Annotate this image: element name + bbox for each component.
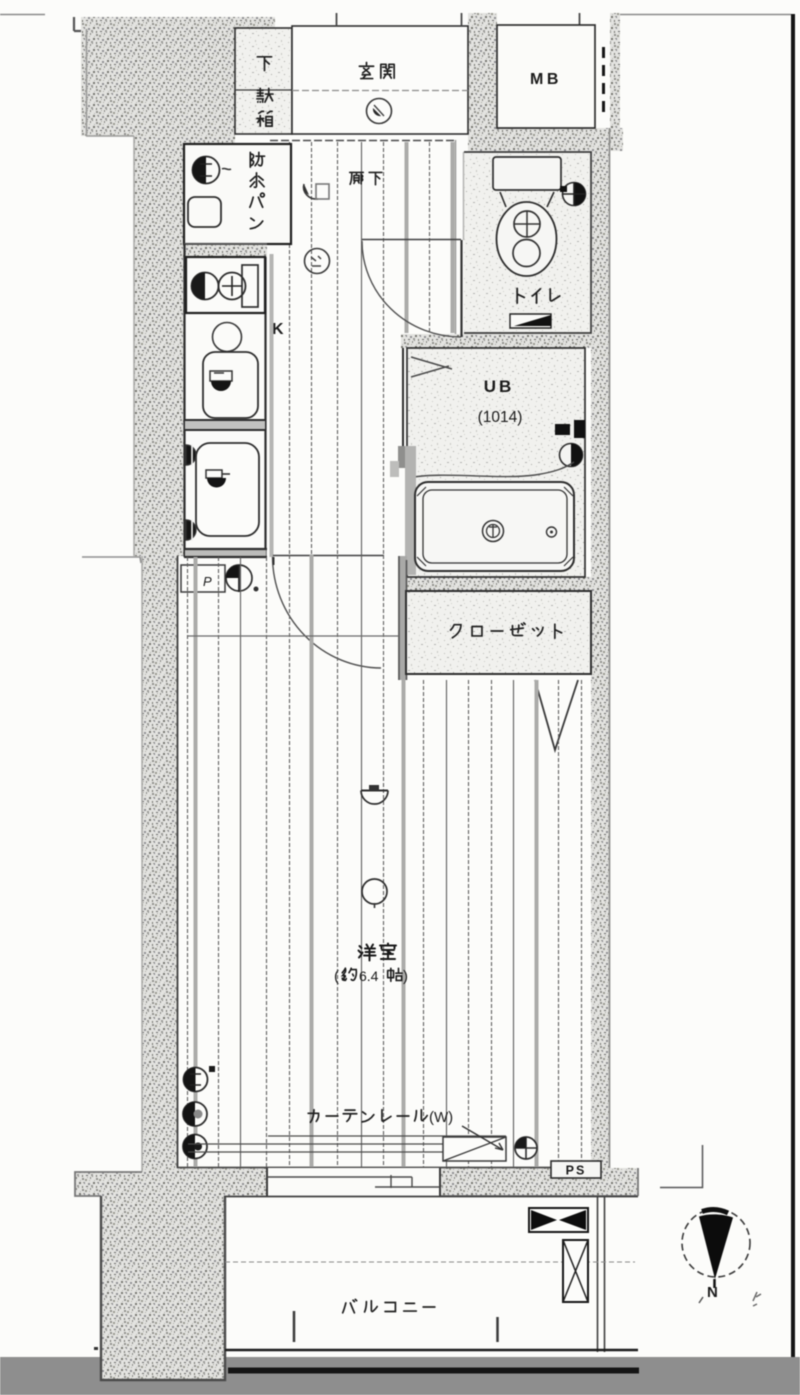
svg-text:(: ( [334, 968, 339, 985]
svg-text:): ) [403, 968, 408, 985]
svg-text:UB: UB [484, 377, 515, 396]
svg-text:6.4: 6.4 [359, 968, 379, 984]
svg-text:(W): (W) [429, 1109, 453, 1126]
svg-text:N: N [707, 1284, 718, 1301]
svg-text:K: K [272, 321, 284, 338]
svg-text:PS: PS [566, 1164, 587, 1178]
svg-text:(1014): (1014) [478, 409, 523, 426]
svg-text:P: P [203, 574, 212, 589]
svg-text:MB: MB [530, 71, 562, 88]
